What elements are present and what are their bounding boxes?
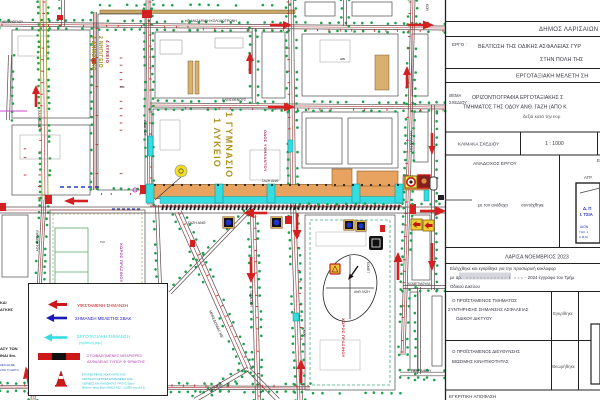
svg-text:ΒΕΛΤΙΩΣΗ ΤΗΣ ΟΔΙΚΗΣ ΑΣΦΑΛΕΙΑΣ: ΒΕΛΤΙΩΣΗ ΤΗΣ ΟΔΙΚΗΣ ΑΣΦΑΛΕΙΑΣ ΓΥΡ: [478, 44, 581, 50]
svg-text:ΓΑΖΗ ΑΝΘ: ΓΑΖΗ ΑΝΘ: [188, 221, 206, 225]
svg-text:συντάχθηκε: συντάχθηκε: [521, 203, 544, 208]
svg-text:ΣΥΝΤΗΡΗΣΗΣ ΣΗΜΑΝΣΗΣ ΑΣΦΑΛΕΙΑΣ: ΣΥΝΤΗΡΗΣΗΣ ΣΗΜΑΝΣΗΣ ΑΣΦΑΛΕΙΑΣ: [448, 307, 529, 312]
svg-text:ΕΡΓΟΤΑΞΙΑΚΗ ΣΗΜΑΝΣΗ: ΕΡΓΟΤΑΞΙΑΚΗ ΣΗΜΑΝΣΗ: [77, 334, 130, 339]
svg-text:ΥΦΙΣΤΑΜΕΝΗ ΣΗΜΑΝΣΗ: ΥΦΙΣΤΑΜΕΝΗ ΣΗΜΑΝΣΗ: [77, 303, 128, 308]
svg-text:ΧΑΛΚΙΔΟΣ: ΧΑΛΚΙΔΟΣ: [37, 110, 41, 129]
svg-text:ΒΙΩΣΙΜΗΣ ΚΙΝΗΤΙΚΟΤΗΤΑΣ: ΒΙΩΣΙΜΗΣ ΚΙΝΗΤΙΚΟΤΗΤΑΣ: [452, 359, 509, 364]
svg-text:2 ΔΗΜΟΤΙΚΟ: 2 ΔΗΜΟΤΙΚΟ: [90, 36, 96, 71]
svg-text:ΗΡ. ΜΑΖΑΡΑΚΗ ΚΟΛΟΚΟΤΡΩΝΗ: ΗΡ. ΜΑΖΑΡΑΚΗ ΚΟΛΟΚΟΤΡΩΝΗ: [185, 19, 237, 23]
svg-text:ΧΩΡΟΣ ΠΡΑΣΙΝΟΥ: ΧΩΡΟΣ ΠΡΑΣΙΝΟΥ: [119, 243, 124, 283]
svg-text:ΚΛΙΜΑΚΑ ΣΧΕΔΙΟΥ: ΚΛΙΜΑΚΑ ΣΧΕΔΙΟΥ: [458, 142, 499, 147]
svg-text:ΟΡΙΖΟΝΤΙΟΓΡΑΦΙΑ ΕΡΓΟΤΑΞΙΑΚΗΣ: ΟΡΙΖΟΝΤΙΟΓΡΑΦΙΑ ΕΡΓΟΤΑΞΙΑΚΗΣ Σ: [472, 95, 563, 101]
svg-text:ΧΩΡΟΣ ΠΡΑΣΙΝΟΥ: ΧΩΡΟΣ ΠΡΑΣΙΝΟΥ: [341, 318, 346, 358]
svg-text:Οδικού Δικτύου: Οδικού Δικτύου: [450, 284, 480, 289]
svg-text:500mm ,θεση 50cm (ΕΝ13 422 - 1: 500mm ,θεση 50cm (ΕΝ13 422 - 1:2000 παρ.…: [82, 386, 145, 390]
svg-text:ΑΣΥ ΤΩΝ: ΑΣΥ ΤΩΝ: [0, 346, 18, 351]
svg-text:4 ΛΥΚΕΙΟ: 4 ΛΥΚΕΙΟ: [105, 40, 110, 63]
svg-text:ΚΑΙ: ΚΑΙ: [0, 301, 7, 305]
svg-text:ΚΛΕΙΣΘΕΝΟΥΣ: ΚΛΕΙΣΘΕΝΟΥΣ: [222, 98, 246, 102]
svg-text:ΓΑΖΗ ΑΝΘ: ΓΑΖΗ ΑΝΘ: [262, 179, 279, 183]
svg-text:ΣΤΗΝ ΠΟΛΗ ΤΗΣ: ΣΤΗΝ ΠΟΛΗ ΤΗΣ: [540, 57, 584, 63]
svg-text:ΘΒΙ: ΘΒΙ: [340, 57, 345, 61]
svg-text:ΚΩΝ: ΚΩΝ: [425, 4, 429, 12]
svg-text:ΑΣΩΠΙΟΥ: ΑΣΩΠΙΟΥ: [143, 120, 147, 137]
svg-text:ΑΣΛΑΝΟΓΛΟΥ: ΑΣΛΑΝΟΓΛΟΥ: [2, 20, 24, 24]
svg-text:ΟΔΙΚΟΥ ΔΙΚΤΥΟΥ: ΟΔΙΚΟΥ ΔΙΚΤΥΟΥ: [456, 316, 492, 321]
svg-text:1 ΛΥΚΕΙΟ: 1 ΛΥΚΕΙΟ: [212, 118, 222, 168]
svg-text:ΣΤΟΙΒΑΖΟΜΕΝΕΣ ΜΠΑΡΙΕΡΕΣ: ΣΤΟΙΒΑΖΟΜΕΝΕΣ ΜΠΑΡΙΕΡΕΣ: [87, 354, 143, 358]
svg-text:(πράσινη ριγέ): (πράσινη ριγέ): [79, 341, 102, 345]
svg-text:Α.Φ.Μ.: Α.Φ.Μ.: [579, 235, 589, 239]
svg-text:ΓΒΙ: ΓΒΙ: [120, 85, 125, 89]
svg-text:ΥΨΗΛΑΝΤΟΥ: ΥΨΗΛΑΝΤΟΥ: [409, 130, 413, 153]
svg-text:ΚΩΦ: ΚΩΦ: [302, 330, 306, 338]
svg-text:ΤΗΛ. 2: ΤΗΛ. 2: [579, 230, 589, 234]
svg-text:με αρ.: με αρ.: [450, 275, 462, 280]
svg-text:2 ΝΗΠ/ΓΕΙΟ: 2 ΝΗΠ/ΓΕΙΟ: [97, 36, 103, 68]
svg-text:ΕΡΓΟΤΑΞΙΑΚΗ ΜΕΛΕΤΗ ΣΗ: ΕΡΓΟΤΑΞΙΑΚΗ ΜΕΛΕΤΗ ΣΗ: [516, 74, 588, 80]
svg-text:ΔΙΟΝ: ΔΙΟΝ: [580, 225, 589, 229]
svg-text:ΑΝΤΑΝΑΚΛΑΣΤΙΚΕΣ ΕΠΙΦΑΝΕΙΕΣ ΑΝΑ: ΑΝΤΑΝΑΚΛΑΣΤΙΚΕΣ ΕΠΙΦΑΝΕΙΕΣ ΑΝΑ: [82, 377, 133, 381]
svg-text:ΑΠΟ ΤΟ ΕΡΓΟ: ΑΠΟ ΤΟ ΕΡΓΟ: [0, 368, 20, 372]
svg-text:Θεωρήθηκε: Θεωρήθηκε: [552, 364, 575, 369]
svg-text:ΑΝΑΔΟΧΟΣ ΕΡΓΟΥ: ΑΝΑΔΟΧΟΣ ΕΡΓΟΥ: [473, 161, 518, 167]
svg-text:Δ. Π: Δ. Π: [583, 206, 591, 211]
svg-text:ΔΕΝ ΘΑ ΒΕ: ΔΕΝ ΘΑ ΒΕ: [0, 363, 15, 367]
svg-text:ΑΓΚΗΣ: ΑΓΚΗΣ: [0, 308, 14, 312]
svg-text:ΠΕΡΡΑΙΒΟΥ: ΠΕΡΡΑΙΒΟΥ: [411, 369, 432, 373]
svg-text:ΛΩΡΙΔΕΣ ΧΑΙ ΚΑ ΚΩΝΟΥΣ ΥΨΟΥΣ 50: ΛΩΡΙΔΕΣ ΧΑΙ ΚΑ ΚΩΝΟΥΣ ΥΨΟΥΣ 50cm: [82, 381, 135, 385]
svg-text:ΑΓΡ.: ΑΓΡ.: [584, 175, 593, 180]
svg-text:Εγκρίθηκε: Εγκρίθηκε: [553, 311, 573, 316]
svg-text:ΟΔΟΣ ΥΨΗΛΑΝΤΟΥ: ΟΔΟΣ ΥΨΗΛΑΝΤΟΥ: [263, 130, 268, 172]
svg-text:1 : 1000: 1 : 1000: [545, 141, 564, 147]
svg-text:Ι. ΤΣΙΑ: Ι. ΤΣΙΑ: [580, 212, 593, 217]
svg-text:ΕΓΚΑΘΕ ΡΙΜΟΣ ΚΩΝΟΙ ΑΠΟ ΤΗΣ: ΕΓΚΑΘΕ ΡΙΜΟΣ ΚΩΝΟΙ ΑΠΟ ΤΗΣ: [82, 373, 126, 377]
svg-text:1 ΓΥΜΝΑΣΙΟ: 1 ΓΥΜΝΑΣΙΟ: [224, 112, 234, 178]
svg-text:ΤΣΙΜΙΣΚΗ: ΤΣΙΜΙΣΚΗ: [249, 290, 253, 307]
svg-text:ΙΝΑΙ 5m.: ΙΝΑΙ 5m.: [0, 353, 16, 358]
svg-text:ΕΓΚΡΙΤΙΚΗ ΑΠΟΦΑΣΗ: ΕΓΚΡΙΤΙΚΗ ΑΠΟΦΑΣΗ: [449, 394, 496, 399]
svg-text:ΚΟΜΕΤ: ΚΟΜΕΤ: [366, 262, 370, 273]
svg-text:ΓΗΙ: ΓΗΙ: [100, 240, 105, 244]
svg-text:ΛΑΡΙΣΑ ΝΟΕΜΒΡΙΟΣ 2023: ΛΑΡΙΣΑ ΝΟΕΜΒΡΙΟΣ 2023: [505, 255, 569, 261]
svg-text:με τον ανάδοχο: με τον ανάδοχο: [478, 203, 508, 208]
svg-text:ΤΜΗΜΑΤΟΣ ΤΗΣ ΟΔΟΥ ΑΝΘ. ΓΑΖΗ (: ΤΜΗΜΑΤΟΣ ΤΗΣ ΟΔΟΥ ΑΝΘ. ΓΑΖΗ (ΑΠΟ Κ: [463, 105, 567, 111]
svg-text:δεξιά κατά την εορ: δεξιά κατά την εορ: [523, 113, 561, 120]
svg-text:ΣΗΜΑΝΣΗ ΜΕΛΕΤΗΣ ΣΒΑΚ: ΣΗΜΑΝΣΗ ΜΕΛΕΤΗΣ ΣΒΑΚ: [75, 316, 132, 321]
svg-text:ΑΣΦΑΛΕΙΑΣ ΤΥΠΟΥ Φ ΦΡΑΚΤΗΣ: ΑΣΦΑΛΕΙΑΣ ΤΥΠΟΥ Φ ΦΡΑΚΤΗΣ: [87, 360, 146, 364]
svg-text:ΔΗΜΟΣ ΛΑΡΙΣΑΙΩΝ: ΔΗΜΟΣ ΛΑΡΙΣΑΙΩΝ: [539, 27, 598, 33]
svg-text:ΕΡΓΟ :: ΕΡΓΟ :: [452, 42, 467, 47]
svg-text:Ο ΠΡΟΪΣΤΑΜΕΝΟΣ ΤΜΗΜΑΤΟΣ: Ο ΠΡΟΪΣΤΑΜΕΝΟΣ ΤΜΗΜΑΤΟΣ: [452, 298, 517, 303]
svg-text:Ο ΠΡΟΪΣΤΑΜΕΝΟΣ ΔΙΕΥΘΥΝΣΗΣ: Ο ΠΡΟΪΣΤΑΜΕΝΟΣ ΔΙΕΥΘΥΝΣΗΣ: [452, 349, 520, 354]
svg-text:- 2024 έγγραφο του Τμήμ: - 2024 έγγραφο του Τμήμ: [525, 275, 575, 280]
svg-text:ΘΕΜΑ: ΘΕΜΑ: [449, 93, 462, 98]
svg-text:ΑΝΘ.ΓΑΖΗ: ΑΝΘ.ΓΑΖΗ: [354, 290, 370, 294]
svg-text:ΛΥΚΑΒΗΤΟΥ: ΛΥΚΑΒΗΤΟΥ: [35, 230, 39, 252]
svg-text:Ελέγχθηκε και εγκρίθηκε για τη: Ελέγχθηκε και εγκρίθηκε για την προσωριν…: [450, 266, 556, 271]
svg-text:ΚΟΜΕΤΜΟΥΛΑ: ΚΟΜΕΤΜΟΥΛΑ: [408, 282, 431, 286]
